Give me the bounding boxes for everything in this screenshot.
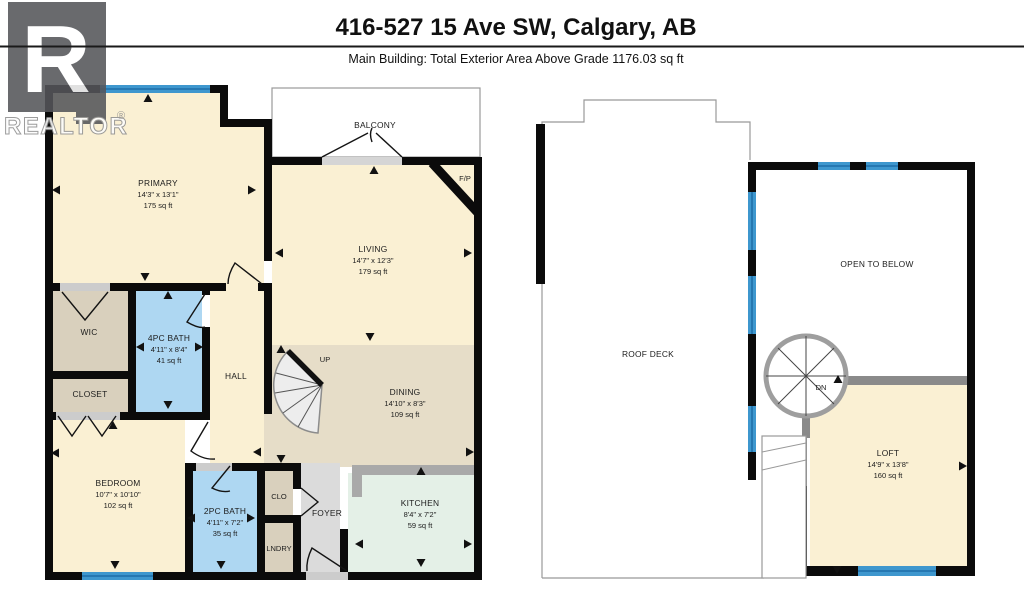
living-room (272, 165, 474, 345)
deck-wall-segment (536, 124, 545, 284)
room-label: PRIMARY (138, 178, 178, 188)
kitchen-counter-left (352, 475, 362, 497)
room-area: 179 sq ft (359, 267, 389, 276)
page-subtitle: Main Building: Total Exterior Area Above… (348, 52, 684, 66)
room-dims: 10'7" x 10'10" (95, 490, 141, 499)
realtor-watermark-logo: R REALTOR ® (4, 2, 128, 140)
balcony-door-sill (322, 157, 402, 165)
room-area: 160 sq ft (874, 471, 904, 480)
page-title: 416-527 15 Ave SW, Calgary, AB (335, 14, 696, 41)
stairwell-corridor (762, 436, 806, 578)
room-label: FOYER (312, 508, 342, 518)
room-area: 59 sq ft (408, 521, 434, 530)
room-label: DINING (390, 387, 421, 397)
realtor-logo-letter: R (21, 6, 90, 113)
room-area: 175 sq ft (144, 201, 174, 210)
floorplan-canvas: PRIMARY 14'3" x 13'1" 175 sq ft LIVING 1… (0, 0, 1024, 605)
room-area: 35 sq ft (213, 529, 239, 538)
room-label: WIC (80, 327, 97, 337)
room-dims: 8'4" x 7'2" (404, 510, 437, 519)
room-label: 2PC BATH (204, 506, 246, 516)
kitchen-counter-top (352, 465, 474, 475)
room-area: 109 sq ft (391, 410, 421, 419)
spiral-stairs-down (766, 336, 846, 416)
registered-trademark-symbol: ® (117, 110, 125, 122)
stairs-up-label: UP (320, 355, 330, 364)
stairs-down-label: DN (816, 383, 827, 392)
door-opening (226, 283, 258, 291)
door-sill (60, 283, 110, 291)
room-label: LIVING (359, 244, 388, 254)
room-label: LOFT (877, 448, 899, 458)
room-dims: 14'10" x 8'3" (384, 399, 425, 408)
room-label: BALCONY (354, 120, 396, 130)
realtor-wordmark: REALTOR (4, 113, 128, 140)
header: 416-527 15 Ave SW, Calgary, AB Main Buil… (0, 14, 1024, 66)
room-label: HALL (225, 371, 247, 381)
main-floor-plan: PRIMARY 14'3" x 13'1" 175 sq ft LIVING 1… (45, 85, 482, 580)
room-label: 4PC BATH (148, 333, 190, 343)
room-label: OPEN TO BELOW (840, 259, 913, 269)
fireplace-label: F/P (459, 174, 471, 183)
room-label: CLO (271, 492, 287, 501)
room-label: LNDRY (266, 544, 291, 553)
room-dims: 14'3" x 13'1" (137, 190, 178, 199)
upper-floor-plan: ROOF DECK OPEN TO BELOW LOFT 14'9" x 13'… (536, 100, 975, 578)
room-label: CLOSET (72, 389, 107, 399)
roof-deck-outline (542, 100, 750, 578)
room-dims: 4'11" x 8'4" (151, 345, 188, 354)
room-label: KITCHEN (401, 498, 440, 508)
room-label: ROOF DECK (622, 349, 674, 359)
room-dims: 14'7" x 12'3" (352, 256, 393, 265)
room-area: 41 sq ft (157, 356, 183, 365)
room-area: 102 sq ft (104, 501, 134, 510)
door-sill (306, 572, 348, 580)
room-dims: 4'11" x 7'2" (207, 518, 244, 527)
room-label: BEDROOM (95, 478, 140, 488)
room-dims: 14'9" x 13'8" (867, 460, 908, 469)
